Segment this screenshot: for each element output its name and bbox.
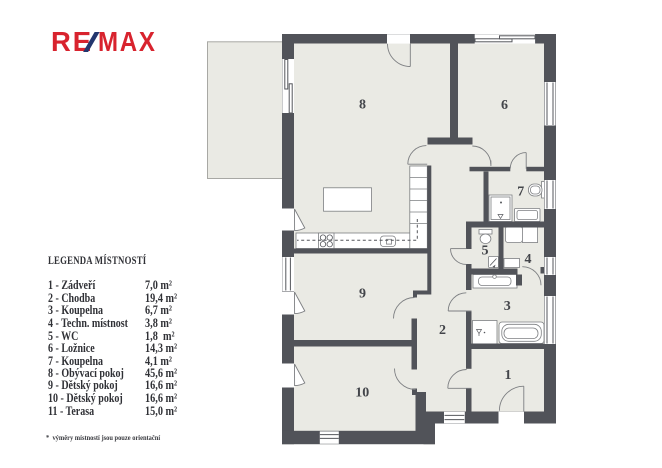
svg-text:4: 4 xyxy=(525,252,532,267)
svg-text:9: 9 xyxy=(359,286,366,301)
svg-text:5: 5 xyxy=(482,243,489,258)
svg-text:7: 7 xyxy=(517,185,524,200)
svg-text:1: 1 xyxy=(505,368,512,383)
svg-text:3: 3 xyxy=(504,299,511,314)
svg-text:2: 2 xyxy=(439,323,446,338)
svg-text:10: 10 xyxy=(355,385,369,400)
svg-text:8: 8 xyxy=(359,98,366,113)
svg-text:6: 6 xyxy=(501,98,508,113)
